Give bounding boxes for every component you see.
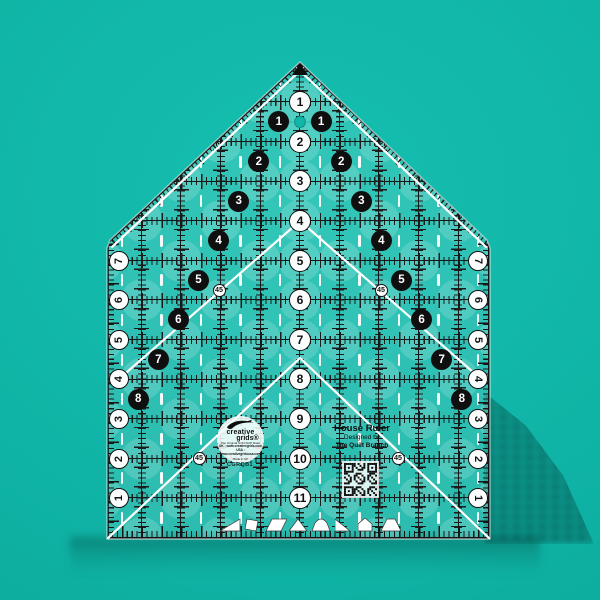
right-edge-measure-circle: 1 [468,488,488,508]
grip-dot [81,160,123,202]
product-code: CGRQB1 [216,462,264,468]
grip-dot [477,81,519,123]
left-edge-measure-circle: 6 [109,290,129,310]
cast-shadow-bottom [70,537,540,575]
diagonal-left-measure-circle: 5 [188,270,209,291]
diagonal-left-measure-circle-label: 1 [276,116,282,128]
diagonal-right-measure-circle: 8 [451,389,472,410]
center-measure-circle: 6 [289,289,311,311]
quilt-shape-icon-triangle [289,518,310,532]
center-measure-circle-label: 6 [297,293,304,307]
diagonal-right-measure-circle-label: 5 [398,274,404,286]
diagonal-right-measure-circle-label: 2 [338,156,344,168]
left-edge-measure-circle-label: 6 [113,297,125,303]
angle-45-badge-label: 45 [215,286,223,294]
center-measure-circle-label: 5 [297,254,304,268]
quilt-shape-icon-house [358,518,379,532]
right-edge-measure-circle: 5 [468,330,488,350]
left-edge-measure-circle-label: 2 [113,455,125,461]
half-inch-dash [239,76,241,88]
center-measure-circle: 10 [289,448,311,470]
center-measure-circle-label: 4 [297,214,304,228]
quilt-shape-icon-dome [312,518,333,532]
diagonal-right-measure-circle: 3 [351,191,372,212]
diagonal-right-measure-circle-label: 1 [318,116,324,128]
left-edge-measure-circle: 5 [109,330,129,350]
diagonal-right-measure-circle-label: 7 [438,354,444,366]
diagonal-right-measure-circle: 5 [391,270,412,291]
half-inch-dash [398,76,400,88]
center-measure-circle: 1 [289,91,311,113]
quilt-shape-icon-right-triangle-flip [335,518,356,532]
half-inch-dash [160,116,162,128]
right-edge-measure-circle: 3 [468,409,488,429]
designer-name: The Quilt Branch [310,442,414,449]
half-inch-dash [398,116,400,128]
left-edge-measure-circle-label: 4 [113,376,125,382]
half-inch-dash [437,156,439,168]
right-edge-measure-circle-label: 6 [472,297,484,303]
grip-dot [477,160,519,202]
half-inch-dash [121,116,123,128]
left-edge-measure-circle: 3 [109,409,129,429]
made-in-label: Made in UK [233,457,249,461]
diagonal-left-measure-circle-label: 6 [175,314,181,326]
half-inch-dash [477,76,479,88]
half-inch-dash [121,195,123,207]
right-edge-measure-circle: 6 [468,290,488,310]
center-measure-circle-label: 3 [297,174,304,188]
product-photo: 1234567891011765432176543211234567812345… [0,0,600,600]
half-inch-dash [477,195,479,207]
quilt-shape-icon-right-triangle [220,518,241,532]
center-measure-circle-label: 9 [297,412,304,426]
grip-dot [121,121,163,163]
cast-shadow-right [484,392,594,544]
half-inch-dash [437,76,439,88]
diagonal-right-measure-circle-label: 8 [459,393,465,405]
grip-dot [160,81,202,123]
half-inch-dash [477,116,479,128]
grip-dot [398,81,440,123]
right-edge-measure-circle-label: 7 [472,257,484,263]
left-edge-measure-circle-label: 3 [113,416,125,422]
half-inch-dash [200,76,202,88]
grip-dot [200,42,242,84]
diagonal-left-measure-circle-label: 3 [235,195,241,207]
diagonal-right-measure-circle: 4 [371,230,392,251]
grip-dot [81,81,123,123]
diagonal-left-measure-circle-label: 8 [135,393,141,405]
left-edge-measure-circle-label: 5 [113,337,125,343]
diagonal-left-measure-circle-label: 2 [256,156,262,168]
center-measure-circle-label: 11 [294,491,307,505]
right-edge-measure-circle-label: 1 [472,495,484,501]
quilt-shape-icons-row [220,515,382,532]
center-measure-circle: 7 [289,329,311,351]
product-title-block: House Ruler Designed by The Quilt Branch [310,424,414,449]
quilt-shape-icon-parallelogram [266,518,287,532]
diagonal-right-measure-circle: 2 [331,151,352,172]
half-inch-dash [437,116,439,128]
angle-45-badge: 45 [193,452,206,465]
angle-45-badge: 45 [213,284,226,297]
left-edge-measure-circle: 2 [109,449,129,469]
diagonal-left-measure-circle-label: 4 [215,235,221,247]
angle-45-badge-label: 45 [195,454,203,462]
grip-dot [358,42,400,84]
right-edge-measure-circle: 2 [468,449,488,469]
half-inch-dash [477,156,479,168]
diagonal-right-measure-circle: 1 [311,111,332,132]
right-edge-measure-circle-label: 2 [472,455,484,461]
center-measure-circle-label: 10 [293,452,306,466]
center-measure-circle: 11 [289,487,311,509]
right-edge-measure-circle: 7 [468,251,488,271]
product-title: House Ruler [310,424,414,434]
center-measure-circle: 4 [289,210,311,232]
right-edge-measure-circle-label: 4 [472,376,484,382]
left-edge-measure-circle-label: 1 [113,495,125,501]
half-inch-dash [121,76,123,88]
diagonal-left-measure-circle: 8 [128,389,149,410]
quilt-shape-icon-trapezoid [381,518,402,532]
half-inch-dash [160,156,162,168]
brand-url-usa: USA : www.creativegridsusa.com [217,449,264,457]
hanging-hole [294,116,306,128]
quilt-shape-icon-tilted-square [243,518,264,532]
half-inch-dash [121,156,123,168]
center-measure-circle: 9 [289,408,311,430]
left-edge-measure-circle: 1 [109,488,129,508]
center-measure-circle-label: 1 [297,95,304,109]
half-inch-dash [200,116,202,128]
center-measure-circle-label: 2 [297,135,304,149]
left-edge-measure-circle-label: 7 [113,257,125,263]
right-edge-measure-circle-label: 5 [472,337,484,343]
grip-dot [437,42,479,84]
center-measure-circle: 5 [289,250,311,272]
half-inch-dash [358,76,360,88]
diagonal-left-measure-circle-label: 5 [195,274,201,286]
diagonal-right-measure-circle-label: 6 [418,314,424,326]
left-edge-measure-circle: 7 [109,251,129,271]
grip-dot [437,121,479,163]
angle-45-badge-label: 45 [377,286,385,294]
diagonal-left-measure-circle-label: 7 [155,354,161,366]
diagonal-left-measure-circle: 3 [228,191,249,212]
diagonal-right-measure-circle-label: 3 [358,195,364,207]
center-measure-circle-label: 8 [297,372,304,386]
creative-grids-logo: creative grids® The Original NON-SLIP Ru… [217,416,264,463]
grip-dot [121,42,163,84]
diagonal-right-measure-circle-label: 4 [378,235,384,247]
angle-45-badge: 45 [392,452,405,465]
center-measure-circle: 2 [289,131,311,153]
angle-45-badge: 45 [375,284,388,297]
designed-by-label: Designed by [310,434,414,442]
half-inch-dash [160,76,162,88]
angle-45-badge-label: 45 [394,454,402,462]
diagonal-left-measure-circle: 7 [148,349,169,370]
qr-code [342,461,379,498]
right-edge-measure-circle-label: 3 [472,416,484,422]
apex-pointer-icon [292,63,308,75]
center-measure-circle-label: 7 [297,333,304,347]
